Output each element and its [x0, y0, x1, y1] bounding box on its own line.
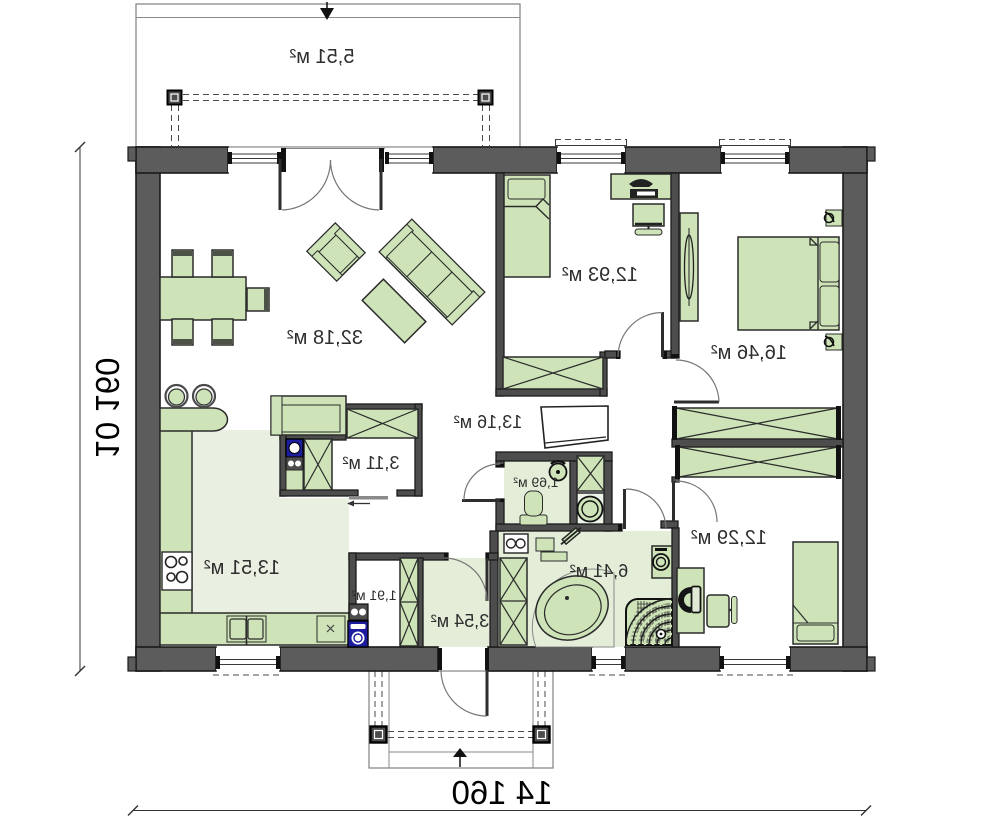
svg-text:10 160: 10 160 — [89, 358, 126, 459]
svg-text:13,16 м²: 13,16 м² — [454, 412, 522, 432]
svg-text:13,51 м²: 13,51 м² — [204, 557, 280, 579]
svg-text:3,11 м²: 3,11 м² — [342, 453, 399, 473]
svg-text:12,29 м²: 12,29 м² — [691, 527, 767, 549]
svg-text:16,46 м²: 16,46 м² — [711, 342, 787, 364]
svg-text:5,51 м²: 5,51 м² — [289, 46, 354, 68]
svg-text:1,91 м²: 1,91 м² — [351, 587, 397, 603]
svg-text:1,69 м²: 1,69 м² — [513, 474, 559, 490]
svg-text:14 160: 14 160 — [452, 774, 553, 811]
svg-text:12,93 м²: 12,93 м² — [562, 264, 638, 286]
svg-text:3,54 м²: 3,54 м² — [431, 611, 489, 631]
svg-text:6,41 м²: 6,41 м² — [570, 561, 628, 581]
svg-text:32,18 м²: 32,18 м² — [287, 327, 363, 349]
